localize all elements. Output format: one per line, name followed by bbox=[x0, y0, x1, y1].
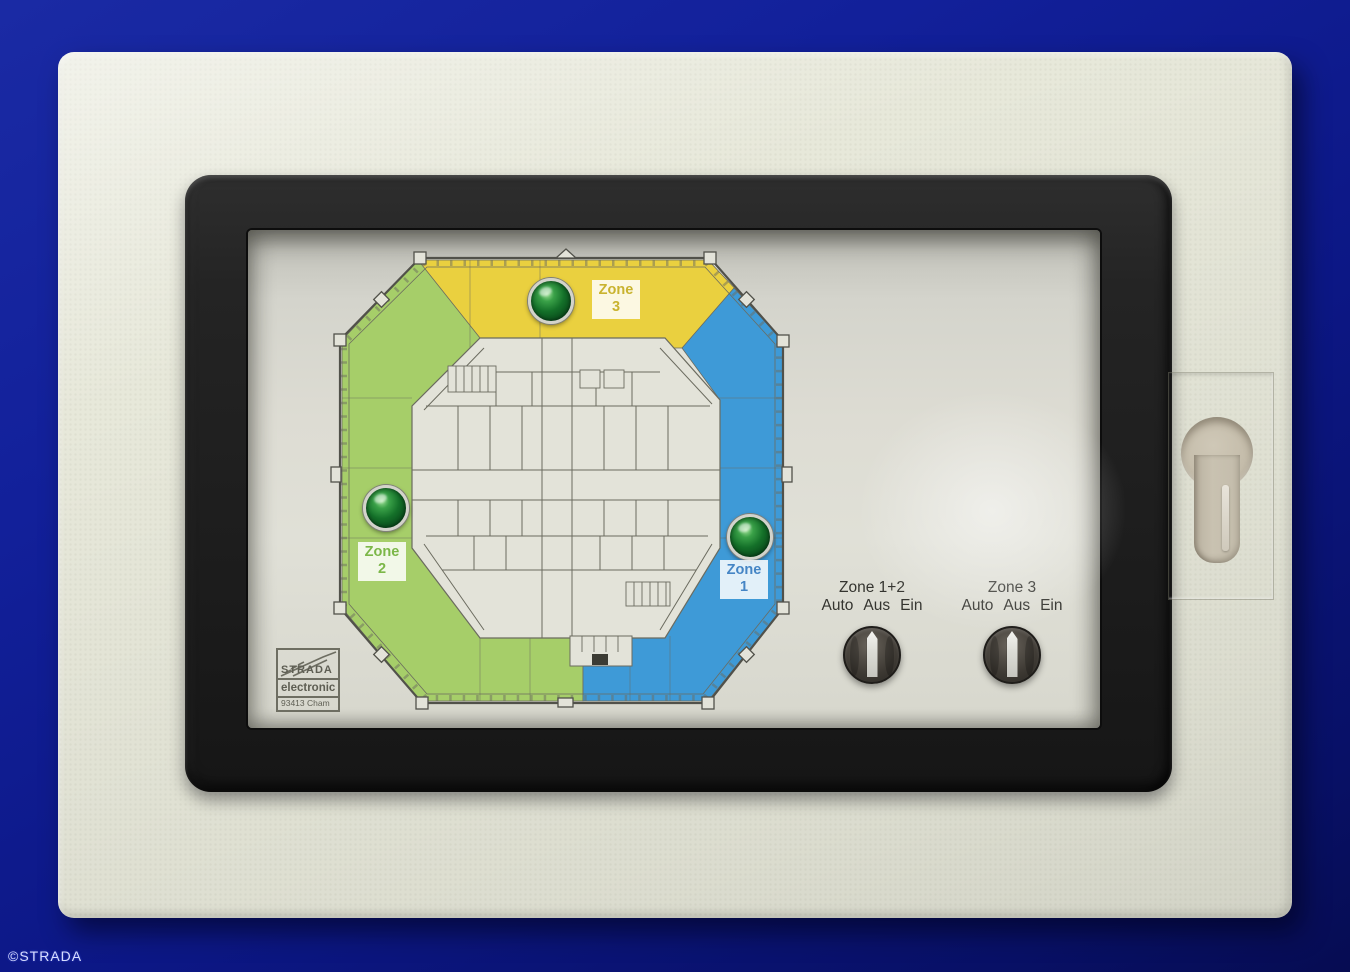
strada-electronic-text: electronic bbox=[276, 678, 340, 696]
zone1-label-line1: Zone bbox=[720, 562, 768, 579]
zone1-led-indicator bbox=[727, 514, 773, 560]
rotary-switch-zone3-knob[interactable] bbox=[983, 626, 1041, 684]
switch-group-zone3: Zone 3 AutoAusEin bbox=[922, 579, 1102, 684]
switch-zone3-option-auto: Auto bbox=[961, 597, 993, 614]
switch-zone12-option-ein: Ein bbox=[900, 597, 922, 614]
zone2-label: Zone 2 bbox=[358, 542, 406, 581]
strada-city-text: 93413 Cham bbox=[276, 696, 340, 712]
switch-zone3-option-aus: Aus bbox=[1003, 597, 1030, 614]
zone3-label-line1: Zone bbox=[592, 282, 640, 299]
zone3-label-line2: 3 bbox=[592, 299, 640, 316]
switch-zone3-scale: AutoAusEin bbox=[922, 597, 1102, 615]
strada-brand-text: STRADA bbox=[281, 664, 333, 676]
zone2-label-line1: Zone bbox=[358, 544, 406, 561]
zone1-label-line2: 1 bbox=[720, 579, 768, 596]
switch-zone3-option-ein: Ein bbox=[1040, 597, 1062, 614]
zone1-label: Zone 1 bbox=[720, 560, 768, 599]
switch-zone12-option-auto: Auto bbox=[821, 597, 853, 614]
front-panel: Zone 3 Zone 2 Zone 1 Zone 1+2 AutoAusEin bbox=[248, 230, 1100, 728]
keyhole-stem[interactable] bbox=[1194, 455, 1240, 563]
control-panel-photo: Zone 3 Zone 2 Zone 1 Zone 1+2 AutoAusEin bbox=[0, 0, 1350, 972]
knob-pointer bbox=[1007, 631, 1018, 677]
strada-logo-mark: STRADA bbox=[276, 648, 340, 678]
enclosure-door: Zone 3 Zone 2 Zone 1 Zone 1+2 AutoAusEin bbox=[58, 52, 1292, 918]
zone3-label: Zone 3 bbox=[592, 280, 640, 319]
lock-latch bbox=[1222, 485, 1229, 551]
switch-zone3-title: Zone 3 bbox=[922, 579, 1102, 597]
copyright-watermark: ©STRADA bbox=[8, 948, 82, 964]
rotary-switch-zone12-knob[interactable] bbox=[843, 626, 901, 684]
key-lock-recess bbox=[1168, 372, 1274, 600]
core-annex bbox=[570, 636, 632, 666]
zone2-label-line2: 2 bbox=[358, 561, 406, 578]
zone2-led-indicator bbox=[363, 485, 409, 531]
display-window-frame: Zone 3 Zone 2 Zone 1 Zone 1+2 AutoAusEin bbox=[185, 175, 1172, 792]
switch-zone12-option-aus: Aus bbox=[863, 597, 890, 614]
strada-logo: STRADA electronic 93413 Cham bbox=[276, 648, 340, 712]
knob-pointer bbox=[867, 631, 878, 677]
zone3-led-indicator bbox=[528, 278, 574, 324]
